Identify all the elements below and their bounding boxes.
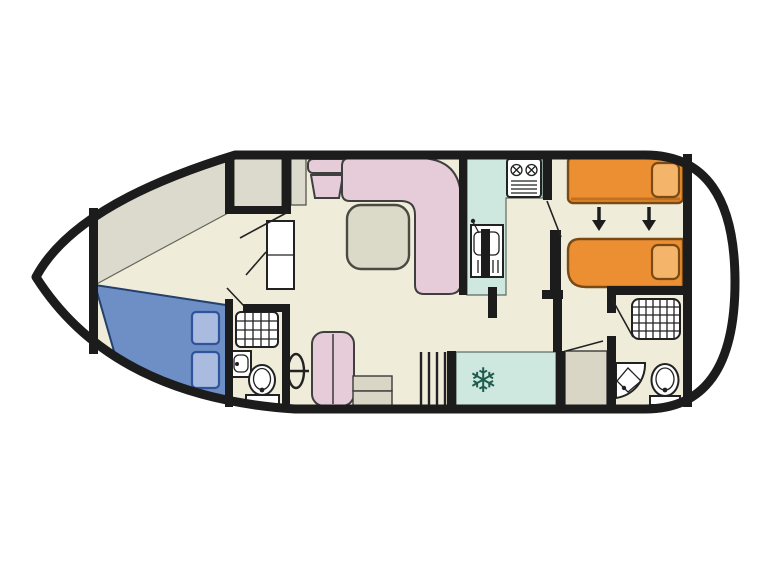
aft-deck bbox=[687, 157, 736, 406]
wall bbox=[481, 229, 490, 278]
pillow bbox=[652, 245, 679, 279]
sink-tap-head bbox=[471, 219, 475, 223]
wall bbox=[556, 351, 565, 407]
shelf-unit bbox=[291, 157, 306, 205]
basin-drain bbox=[235, 362, 239, 366]
armchair-seat bbox=[311, 175, 343, 198]
basin-drain bbox=[622, 386, 626, 390]
wall bbox=[607, 336, 616, 407]
aft-steps bbox=[565, 351, 607, 407]
wall-bow-bulkhead bbox=[89, 208, 98, 354]
boat-floor-plan: ❄ bbox=[0, 0, 768, 576]
wall bbox=[282, 304, 290, 408]
wall bbox=[225, 154, 234, 214]
steps-icon bbox=[353, 376, 392, 391]
dinette-table bbox=[347, 205, 409, 269]
pillow bbox=[192, 312, 219, 344]
stove-burners-icon bbox=[507, 159, 541, 197]
wall bbox=[553, 290, 562, 352]
wall bbox=[225, 206, 291, 214]
wall bbox=[447, 351, 456, 407]
wall bbox=[282, 154, 291, 206]
wall bbox=[550, 230, 561, 291]
wall bbox=[459, 151, 467, 295]
pillow bbox=[192, 352, 219, 388]
pillow bbox=[652, 163, 679, 197]
deck-plan-svg: ❄ bbox=[0, 0, 768, 576]
steps-icon bbox=[353, 391, 392, 406]
wall-stern-bulkhead bbox=[683, 154, 692, 407]
toilet-flush bbox=[260, 388, 265, 393]
wall bbox=[488, 287, 497, 318]
fridge-snowflake-icon: ❄ bbox=[469, 361, 498, 401]
toilet-flush bbox=[663, 388, 668, 393]
wall bbox=[607, 286, 690, 295]
wardrobe bbox=[234, 157, 282, 209]
wall bbox=[243, 304, 290, 312]
armchair-back bbox=[308, 159, 346, 173]
wall bbox=[225, 299, 233, 407]
